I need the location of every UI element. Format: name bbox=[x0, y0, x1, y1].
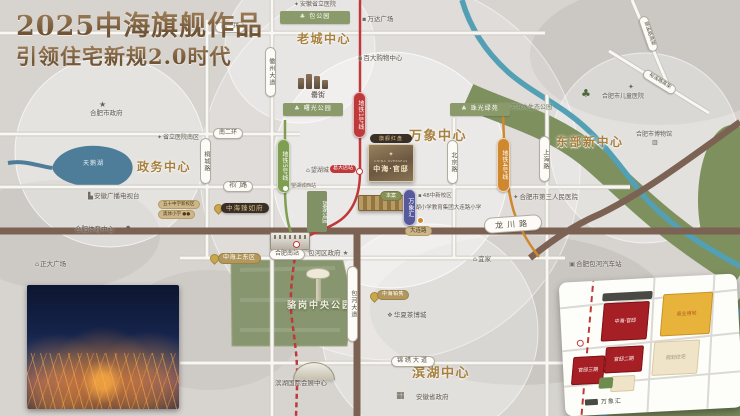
road-yuxi-viaduct: 裕溪路高架 bbox=[641, 68, 678, 96]
label-third-hospital-icon: ✦ bbox=[513, 193, 518, 201]
label-museum: 合肥市博物馆 bbox=[636, 132, 672, 139]
inset-parcel-commercial: 商业用地 bbox=[660, 292, 714, 337]
prov-gov-icon: ▦ bbox=[396, 391, 405, 401]
label-baohe-gov: 包河区政府 ★ bbox=[308, 250, 349, 257]
center-laocheng: 老城中心 bbox=[297, 33, 351, 47]
label-swan-lake: 天鹅湖 bbox=[83, 161, 104, 168]
park-shuguang-icon: ♣ bbox=[294, 106, 300, 113]
project-name: 中海·官邸 bbox=[373, 164, 408, 174]
label-prov-hospital: ✦安徽省立医院 bbox=[294, 2, 336, 9]
project-guandi: 旗舰红盘 ✦ CHINA OVERSEAS 中海·官邸 本案 bbox=[368, 134, 414, 201]
label-hospital-south-icon: ✦ bbox=[157, 134, 162, 141]
label-prov-hospital-icon: ✦ bbox=[294, 1, 299, 8]
road-dalianlu: 大连路 bbox=[405, 226, 432, 236]
metro-line4-capsule: 地铁4号线 bbox=[497, 138, 510, 192]
city-gov-star-icon: ★ bbox=[99, 100, 106, 109]
label-broadcast-icon: ▙ bbox=[88, 192, 93, 200]
label-zhengda-plaza-icon: ⌂ bbox=[35, 260, 39, 268]
label-whc-west-station: 望湖城西站 bbox=[291, 184, 316, 190]
center-wanxiang: 万象中心 bbox=[409, 130, 467, 145]
inset-parcel-wanxianghui bbox=[602, 291, 653, 302]
project-name-en: CHINA OVERSEAS bbox=[374, 159, 408, 163]
aerial-night-photo bbox=[27, 285, 179, 409]
center-dongbu: 东部新中心 bbox=[556, 136, 624, 150]
label-leijie: 罍街 bbox=[311, 91, 325, 99]
tree-icon: ♣ bbox=[581, 88, 591, 101]
center-zhengwu: 政务中心 bbox=[137, 161, 191, 175]
label-wanghucheng-icon: ⌂ bbox=[306, 167, 310, 174]
inset-legend-swatch bbox=[585, 398, 598, 405]
inset-legend-label: 万象汇 bbox=[601, 396, 622, 406]
project-emblem-icon: ✦ bbox=[388, 152, 393, 158]
label-huaxia-teacity-icon: ❖ bbox=[387, 311, 393, 319]
label-hospital-south: ✦省立医院南区 bbox=[157, 135, 199, 142]
road-beijinglu: 北京路 bbox=[447, 140, 458, 184]
children-hospital-icon: ✦ bbox=[628, 83, 634, 91]
map: 2025中海旗舰作品 引领住宅新规2.0时代 旗舰红盘 ✦ CHINA OVER… bbox=[0, 0, 740, 416]
label-luogang-park: 骆岗中央公园 bbox=[287, 301, 353, 311]
sports-dot-icon: ● bbox=[126, 226, 130, 232]
label-huaxia-teacity: ❖华夏茶博城 bbox=[387, 312, 426, 319]
station-dot-gedadian bbox=[356, 168, 363, 175]
label-broadcast: ▙安徽广播电视台 bbox=[88, 193, 140, 200]
road-jinxiu-ave: 锦绣大道 bbox=[391, 356, 435, 367]
museum-icon: ▥ bbox=[652, 140, 658, 147]
inset-parcel-park bbox=[598, 377, 613, 389]
station-gedadian: 葛大店站 bbox=[330, 165, 356, 173]
road-shanghailu: 上海路 bbox=[539, 136, 550, 182]
inset-parcel-phase2: 官邸二期 bbox=[604, 345, 644, 373]
label-children-hospital: 合肥市儿童医院 bbox=[602, 94, 644, 101]
label-school-48-icon: ▪ bbox=[418, 193, 422, 199]
label-wanda-plaza: ▪万达广场 bbox=[362, 16, 393, 23]
station-hefei-south-label: 合肥南站 bbox=[269, 249, 305, 260]
label-baohe-busstation: ▣合肥包河汽车站 bbox=[569, 261, 622, 268]
label-city-gov: 合肥市政府 bbox=[90, 110, 123, 117]
project-box: ✦ CHINA OVERSEAS 中海·官邸 bbox=[368, 144, 414, 182]
label-ikea: ⌂宜家 bbox=[473, 256, 491, 263]
label-school-dalianlu: ▪望湖小学教育集团大连路小学 bbox=[405, 205, 481, 211]
label-wanghucheng: ⌂望湖城 bbox=[306, 168, 329, 175]
park-shuguang: ♣曙光公园 bbox=[283, 103, 343, 116]
metro-line1-capsule: 地铁1号线 bbox=[353, 92, 366, 138]
park-zhuguang-icon: ♣ bbox=[461, 106, 467, 113]
road-baohe-ave: 包河大道 bbox=[347, 266, 358, 342]
label-baida-mall: ▪百大购物中心 bbox=[358, 55, 402, 62]
headline-line2: 引领住宅新规2.0时代 bbox=[16, 44, 263, 70]
label-sports-center: 合肥体育中心 bbox=[75, 226, 114, 233]
busstop-dot bbox=[417, 217, 424, 224]
road-langxi-viaduct: 郎溪路高架 bbox=[638, 15, 659, 53]
site-plan-inset: 中海·官邸商业用地官邸二期官邸三期规划住宅 万象汇 bbox=[559, 273, 740, 416]
road-qimenlu: 祁门路 bbox=[223, 181, 253, 192]
project-ribbon: 旗舰红盘 bbox=[370, 134, 412, 143]
inset-parcel-resid1: 规划住宅 bbox=[651, 339, 700, 376]
road-huizhou-ave: 徽州大道 bbox=[265, 47, 276, 97]
project-site-tag: 本案 bbox=[380, 191, 402, 201]
school-no50: 五十中学新校区 bbox=[158, 200, 200, 209]
label-baohe-busstation-icon: ▣ bbox=[569, 260, 575, 268]
park-baogongyuan-icon: ♣ bbox=[300, 14, 306, 21]
school-aoti: 奥体小学 ●● bbox=[158, 210, 195, 219]
inset-parcel-guandi: 中海·官邸 bbox=[601, 301, 650, 342]
project-bojun: 中海铂隽 bbox=[377, 290, 409, 300]
label-third-hospital: ✦合肥市第三人民医院 bbox=[513, 194, 578, 201]
station-dot-south bbox=[293, 241, 300, 248]
station-dot-line5 bbox=[282, 185, 289, 192]
project-zhenrufu: 中海臻如府 bbox=[221, 203, 269, 213]
label-baida-mall-icon: ▪ bbox=[358, 54, 362, 62]
label-zhengda-plaza: ⌂正大广场 bbox=[35, 261, 66, 268]
headline-line1: 2025中海旗舰作品 bbox=[16, 10, 263, 44]
center-binhu: 滨湖中心 bbox=[412, 367, 470, 382]
label-convention-center: 滨湖国际会展中心 bbox=[275, 380, 327, 387]
label-wanda-plaza-icon: ▪ bbox=[362, 15, 366, 23]
label-ikea-icon: ⌂ bbox=[473, 255, 477, 263]
park-wanghu: 望湖公园 bbox=[307, 191, 327, 232]
inset-parcel-resid2 bbox=[610, 375, 635, 392]
project-shangdongqu: 中海上东区 bbox=[218, 253, 261, 264]
label-school-48: ▪48中新校区 bbox=[418, 193, 452, 199]
label-baohe-gov-suffix-icon: ★ bbox=[341, 249, 349, 257]
label-prov-gov: 安徽省政府 bbox=[416, 394, 449, 401]
park-baogongyuan: ♣包公园 bbox=[280, 11, 350, 24]
road-longchuanlu: 龙川路 bbox=[484, 214, 543, 234]
park-zhuguang: ♣珠光绿苑 bbox=[450, 103, 510, 116]
road-tongchenglu: 桐城路 bbox=[200, 138, 211, 184]
headline: 2025中海旗舰作品 引领住宅新规2.0时代 bbox=[16, 10, 263, 70]
road-nanerhuan: 南二环 bbox=[213, 128, 243, 139]
